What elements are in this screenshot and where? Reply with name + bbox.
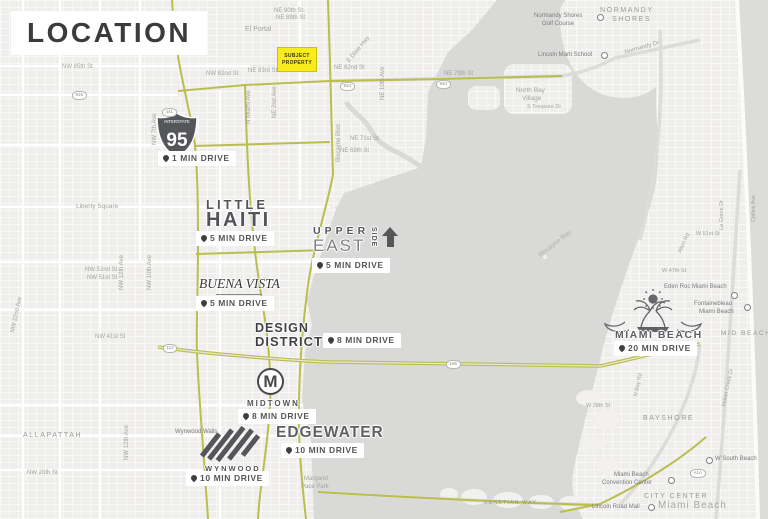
street-nw-20: NW 20th St [27, 470, 58, 476]
map-pin-icon [200, 299, 208, 307]
design-district-line2: DISTRICT [255, 335, 323, 348]
poi-normandy-golf: Normandy Shores [534, 13, 582, 19]
poi-icon [706, 457, 713, 464]
drive-time-label: 20 MIN DRIVE [628, 344, 691, 353]
poi-icon [601, 52, 608, 59]
street-nw-10-ave: NW 10th Ave [147, 255, 153, 290]
page-title: LOCATION [11, 11, 207, 55]
map-pin-icon [285, 446, 293, 454]
drive-time-buena-vista: 5 MIN DRIVE [196, 296, 274, 311]
poi-margaret-pace-park: Margaret [304, 476, 328, 482]
route-shield-934b: 934 [436, 80, 451, 89]
miami-beach-ornament-icon [599, 289, 707, 333]
street-nw-12-ave-2: NW 12th Ave [124, 425, 130, 460]
map-pin-icon [190, 474, 198, 482]
ues-word-upper: UPPER [313, 226, 369, 237]
area-mid-beach: MID BEACH [721, 331, 768, 338]
poi-margaret-pace-park-2: Pace Park [301, 484, 329, 490]
street-la-gorce-dr: La Gorce Dr [720, 200, 726, 230]
upper-east-side-logo: UPPER EAST SIDE [313, 226, 398, 254]
ues-word-side: SIDE [370, 227, 377, 247]
drive-time-miami-beach: 20 MIN DRIVE [614, 341, 697, 356]
street-nw-51: NW 51st St [87, 275, 117, 281]
interstate-banner: INTERSTATE [164, 119, 190, 124]
map-pin-icon [242, 412, 250, 420]
street-ne-2-ave: NE 2nd Ave [272, 86, 278, 118]
poi-convention-center: Miami Beach [614, 472, 649, 478]
street-nw-7-ave: NW 7th Ave [152, 113, 158, 145]
street-nw-52: NW 52nd St [85, 267, 117, 273]
design-district-line1: DESIGN [255, 322, 323, 335]
route-shield-195: 195 [446, 360, 461, 369]
street-s-treasure-dr: S Treasure Dr [527, 105, 561, 111]
street-ne-90: NE 90th St [274, 8, 303, 14]
drive-time-label: 8 MIN DRIVE [337, 336, 395, 345]
street-w-28: W 28th St [586, 404, 610, 410]
little-haiti-logo: LITTLE HAITI [206, 199, 271, 230]
area-miami-beach: Miami Beach [658, 501, 727, 511]
design-district-logo: DESIGN DISTRICT [255, 322, 323, 348]
drive-time-label: 8 MIN DRIVE [252, 412, 310, 421]
drive-time-label: 10 MIN DRIVE [200, 474, 263, 483]
drive-time-midtown: 8 MIN DRIVE [238, 409, 316, 424]
street-n-miami-ave: N Miami Ave [246, 90, 252, 124]
buena-vista-logo: BUENA VISTA [199, 276, 280, 295]
street-ne-79: NE 79th St [444, 71, 473, 77]
midtown-m-icon: M [257, 368, 284, 395]
street-ne-89: NE 89th St [276, 15, 305, 21]
street-nw-12-ave: NW 12th Ave [119, 255, 125, 290]
subject-property-line2: PROPERTY [282, 60, 312, 67]
edgewater-logo: EDGEWATER [276, 424, 384, 442]
subject-property-marker: SUBJECT PROPERTY [277, 47, 317, 72]
area-el-portal: El Portal [245, 26, 271, 33]
drive-time-design-district: 8 MIN DRIVE [323, 333, 401, 348]
map-pin-icon [200, 234, 208, 242]
poi-eden-roc: Eden Roc Miami Beach [664, 284, 727, 290]
street-nw-82: NW 82nd St [206, 71, 238, 77]
area-north-bay-village: North Bay [516, 88, 545, 95]
miami-beach-logo: MIAMI BEACH [615, 329, 703, 341]
street-w-47: W 47th St [662, 269, 686, 275]
street-biscayne-blvd: Biscayne Blvd [336, 124, 342, 162]
street-nw-41: NW 41st St [95, 334, 125, 340]
street-ne-83: NE 83rd St [248, 68, 277, 74]
poi-icon [744, 304, 751, 311]
drive-time-label: 5 MIN DRIVE [210, 234, 268, 243]
area-city-center: CITY CENTER [644, 493, 708, 500]
street-ne-69: NE 69th St [340, 148, 369, 154]
drive-time-wynwood: 10 MIN DRIVE [186, 471, 269, 486]
drive-time-label: 5 MIN DRIVE [326, 261, 384, 270]
area-liberty-square: Liberty Square [76, 204, 118, 211]
street-collins-ave: Collins Ave [752, 195, 758, 222]
area-allapattah: ALLAPATTAH [23, 432, 82, 439]
drive-time-label: 5 MIN DRIVE [210, 299, 268, 308]
interstate-number: 95 [166, 130, 188, 151]
drive-time-label: 1 MIN DRIVE [172, 154, 230, 163]
map-pin-icon [162, 154, 170, 162]
road-label-venetian-way: VENETIAN WAY [484, 501, 537, 507]
route-shield-916: 916 [72, 91, 87, 100]
drive-time-edgewater: 10 MIN DRIVE [281, 443, 364, 458]
drive-time-i95: 1 MIN DRIVE [158, 151, 236, 166]
area-north-bay-village-2: Village [522, 96, 541, 103]
poi-normandy-golf-2: Golf Course [542, 21, 574, 27]
poi-fontainebleau-2: Miami Beach [699, 309, 734, 315]
little-haiti-line2: HAITI [206, 211, 271, 230]
route-shield-441: 441 [162, 108, 177, 117]
area-normandy-shores-2: SHORES [612, 16, 651, 23]
poi-lincoln-marti-school: Lincoln Marti School [538, 52, 592, 58]
buena-vista-rule [216, 294, 262, 295]
street-nw-85: NW 85th St [62, 64, 93, 70]
route-shield-a1a: A1A [690, 469, 706, 478]
street-ne-71: NE 71st St [350, 136, 379, 142]
poi-lincoln-road-mall: Lincoln Road Mall [592, 504, 640, 510]
location-map-page: LOCATION SUBJECT PROPERTY INTERSTATE 95 … [0, 0, 768, 519]
street-ne-10-ave: NE 10th Ave [380, 67, 386, 100]
poi-icon [648, 504, 655, 511]
treasure-island [468, 86, 500, 110]
poi-icon [668, 477, 675, 484]
poi-w-south-beach: W South Beach [715, 456, 757, 462]
street-ne-82: NE 82nd St [334, 65, 365, 71]
poi-icon [731, 292, 738, 299]
map-pin-icon [327, 336, 335, 344]
buena-vista-name: BUENA VISTA [199, 276, 280, 292]
poi-wynwood-walls: Wynwood Walls [175, 429, 217, 435]
poi-icon [597, 14, 604, 21]
area-bayshore: BAYSHORE [643, 415, 694, 422]
route-shield-934: 934 [340, 82, 355, 91]
poi-fontainebleau: Fontainebleau [694, 301, 732, 307]
map-pin-icon [316, 261, 324, 269]
drive-time-little-haiti: 5 MIN DRIVE [196, 231, 274, 246]
drive-time-upper-east-side: 5 MIN DRIVE [312, 258, 390, 273]
midtown-logo: MIDTOWN [247, 399, 300, 408]
street-w-51: W 51st St [696, 232, 720, 238]
poi-convention-center-2: Convention Center [602, 480, 652, 486]
area-normandy-shores: NORMANDY [600, 7, 654, 14]
route-shield-112: 112 [163, 344, 177, 353]
ues-word-east: EAST [313, 237, 369, 254]
drive-time-label: 10 MIN DRIVE [295, 446, 358, 455]
up-arrow-icon [382, 227, 398, 247]
map-pin-icon [618, 344, 626, 352]
